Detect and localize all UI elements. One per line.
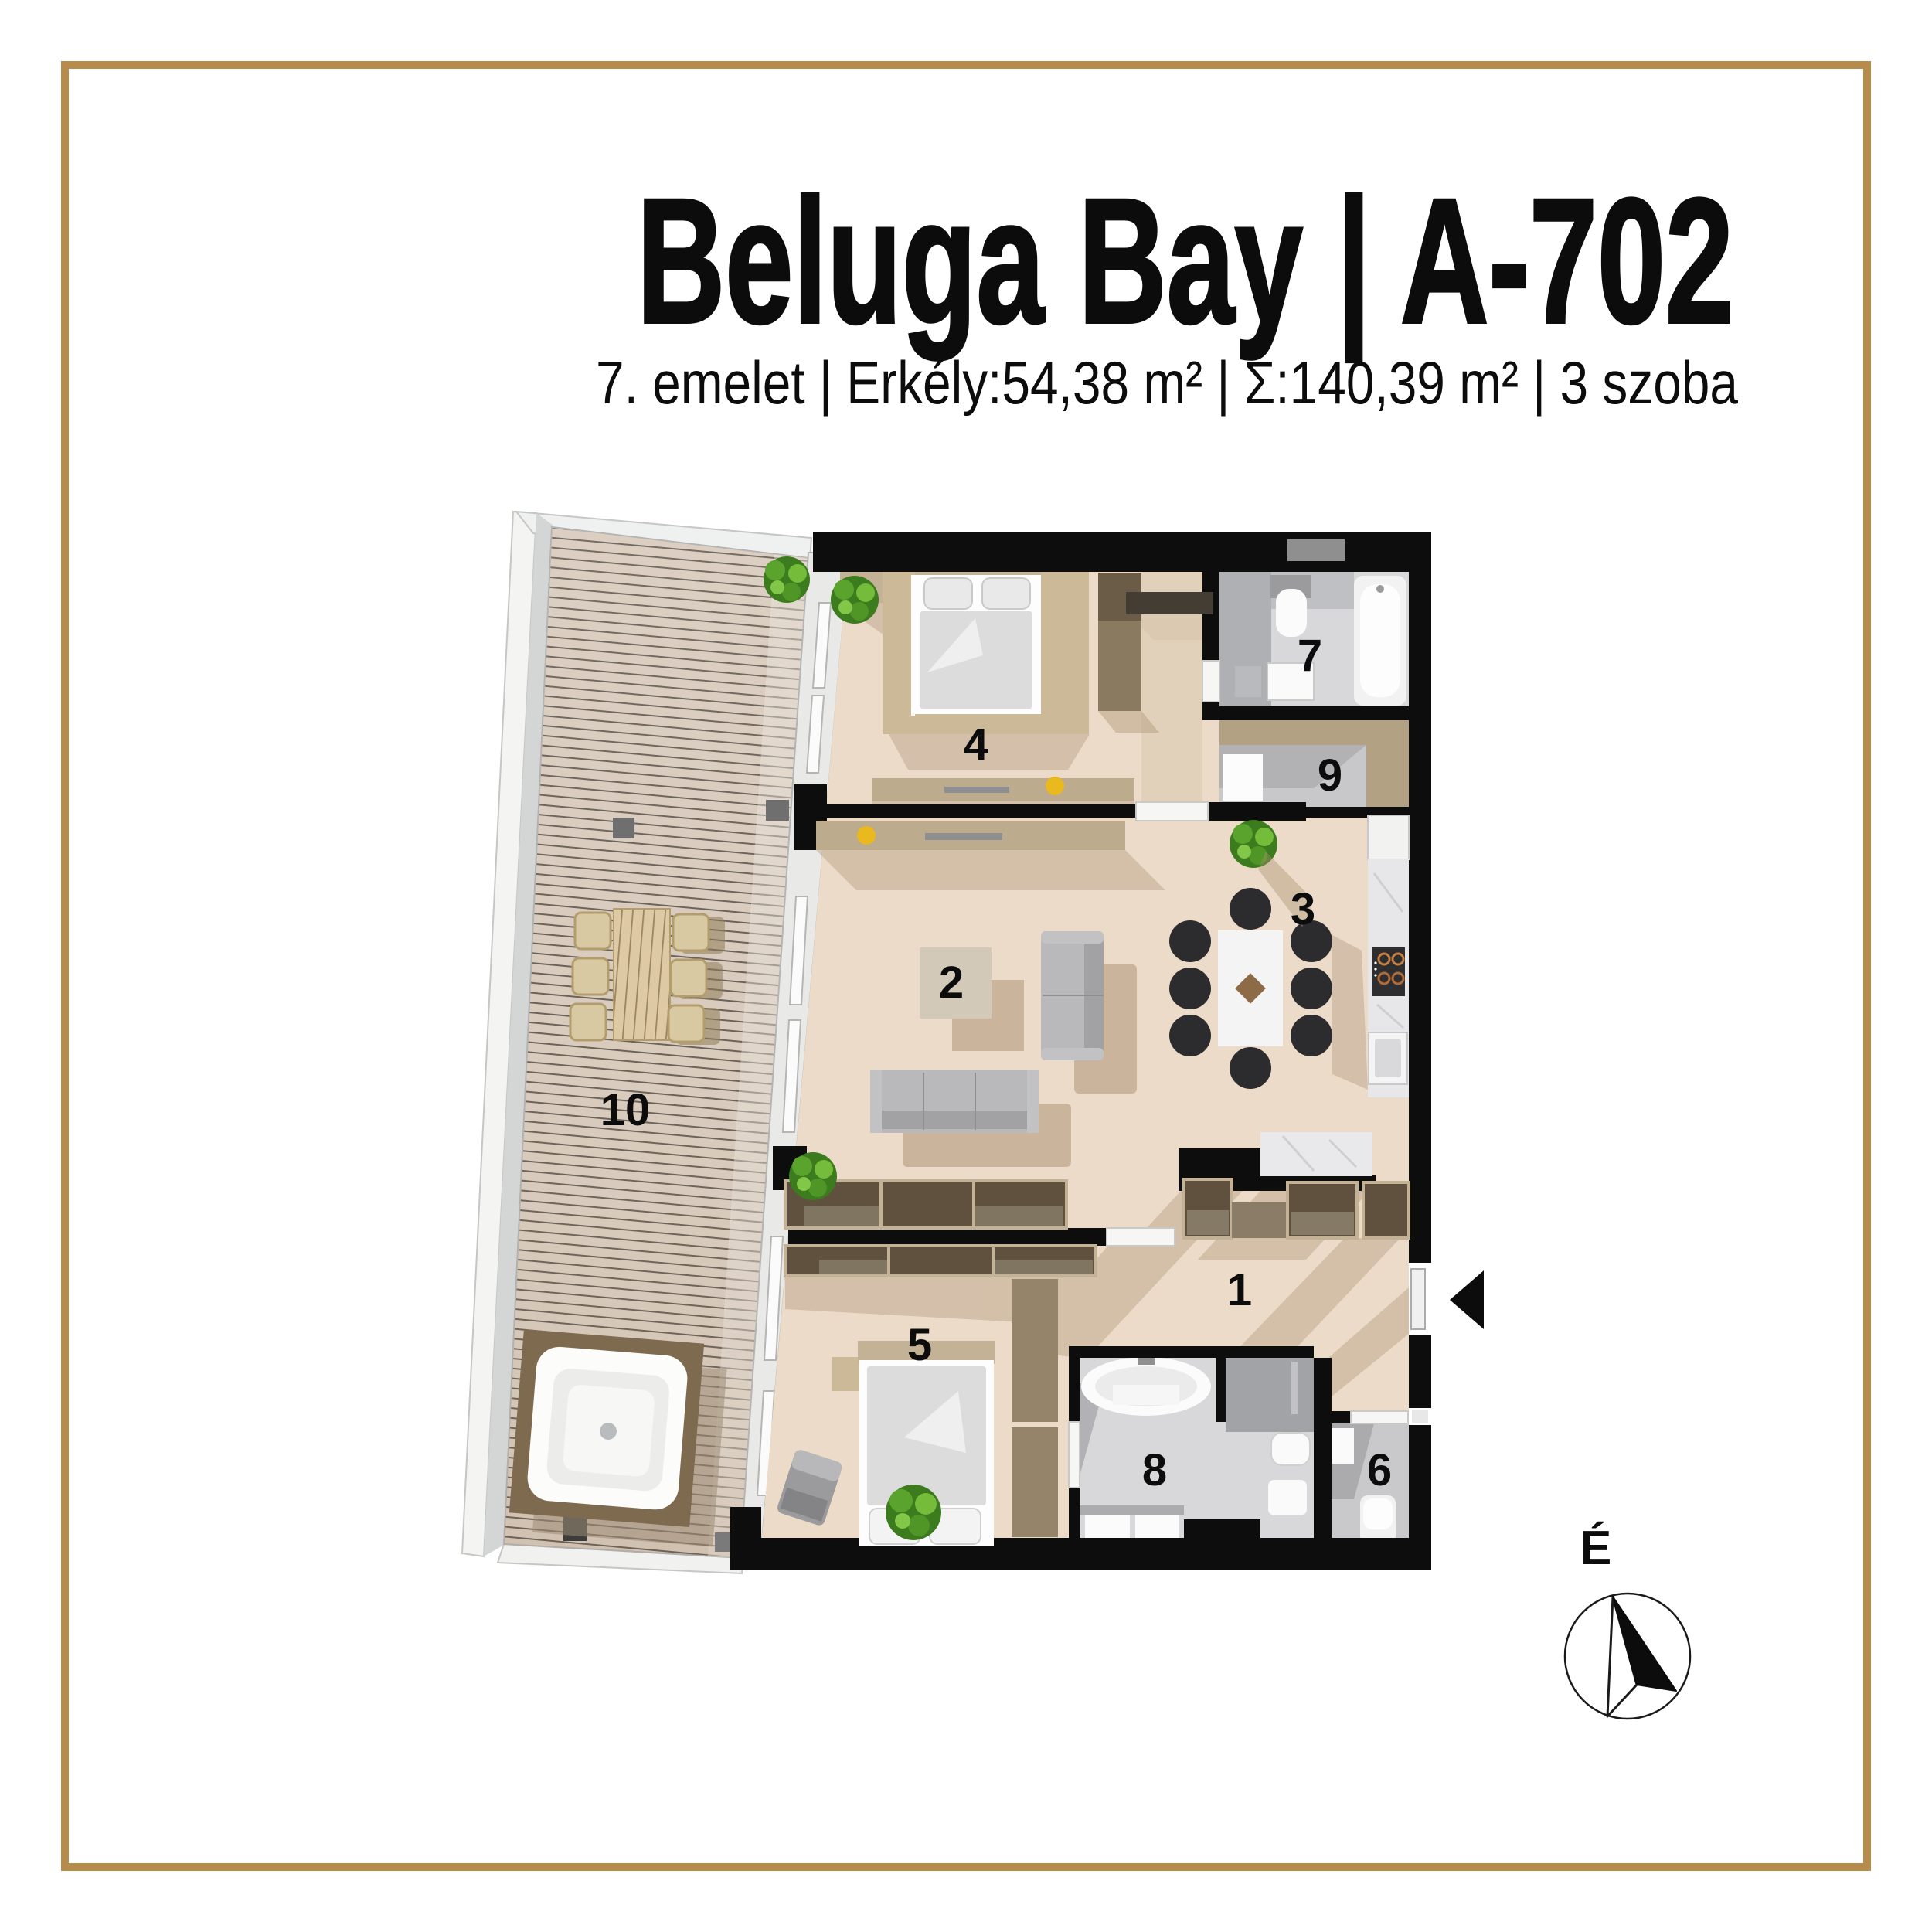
svg-text:5: 5 — [907, 1320, 932, 1370]
svg-text:4: 4 — [964, 719, 988, 770]
svg-text:7. emelet | Erkély:54,38 m² |: 7. emelet | Erkély:54,38 m² | Σ:140,39 m… — [596, 349, 1739, 417]
svg-text:6: 6 — [1367, 1445, 1392, 1495]
svg-text:8: 8 — [1142, 1445, 1167, 1495]
svg-text:É: É — [1580, 1522, 1611, 1575]
svg-text:1: 1 — [1227, 1265, 1252, 1315]
svg-text:3: 3 — [1291, 884, 1315, 934]
svg-text:10: 10 — [600, 1085, 651, 1135]
svg-text:2: 2 — [939, 957, 964, 1008]
svg-text:7: 7 — [1298, 631, 1322, 681]
svg-text:Beluga Bay | A-702: Beluga Bay | A-702 — [637, 162, 1733, 362]
svg-text:9: 9 — [1318, 750, 1342, 801]
